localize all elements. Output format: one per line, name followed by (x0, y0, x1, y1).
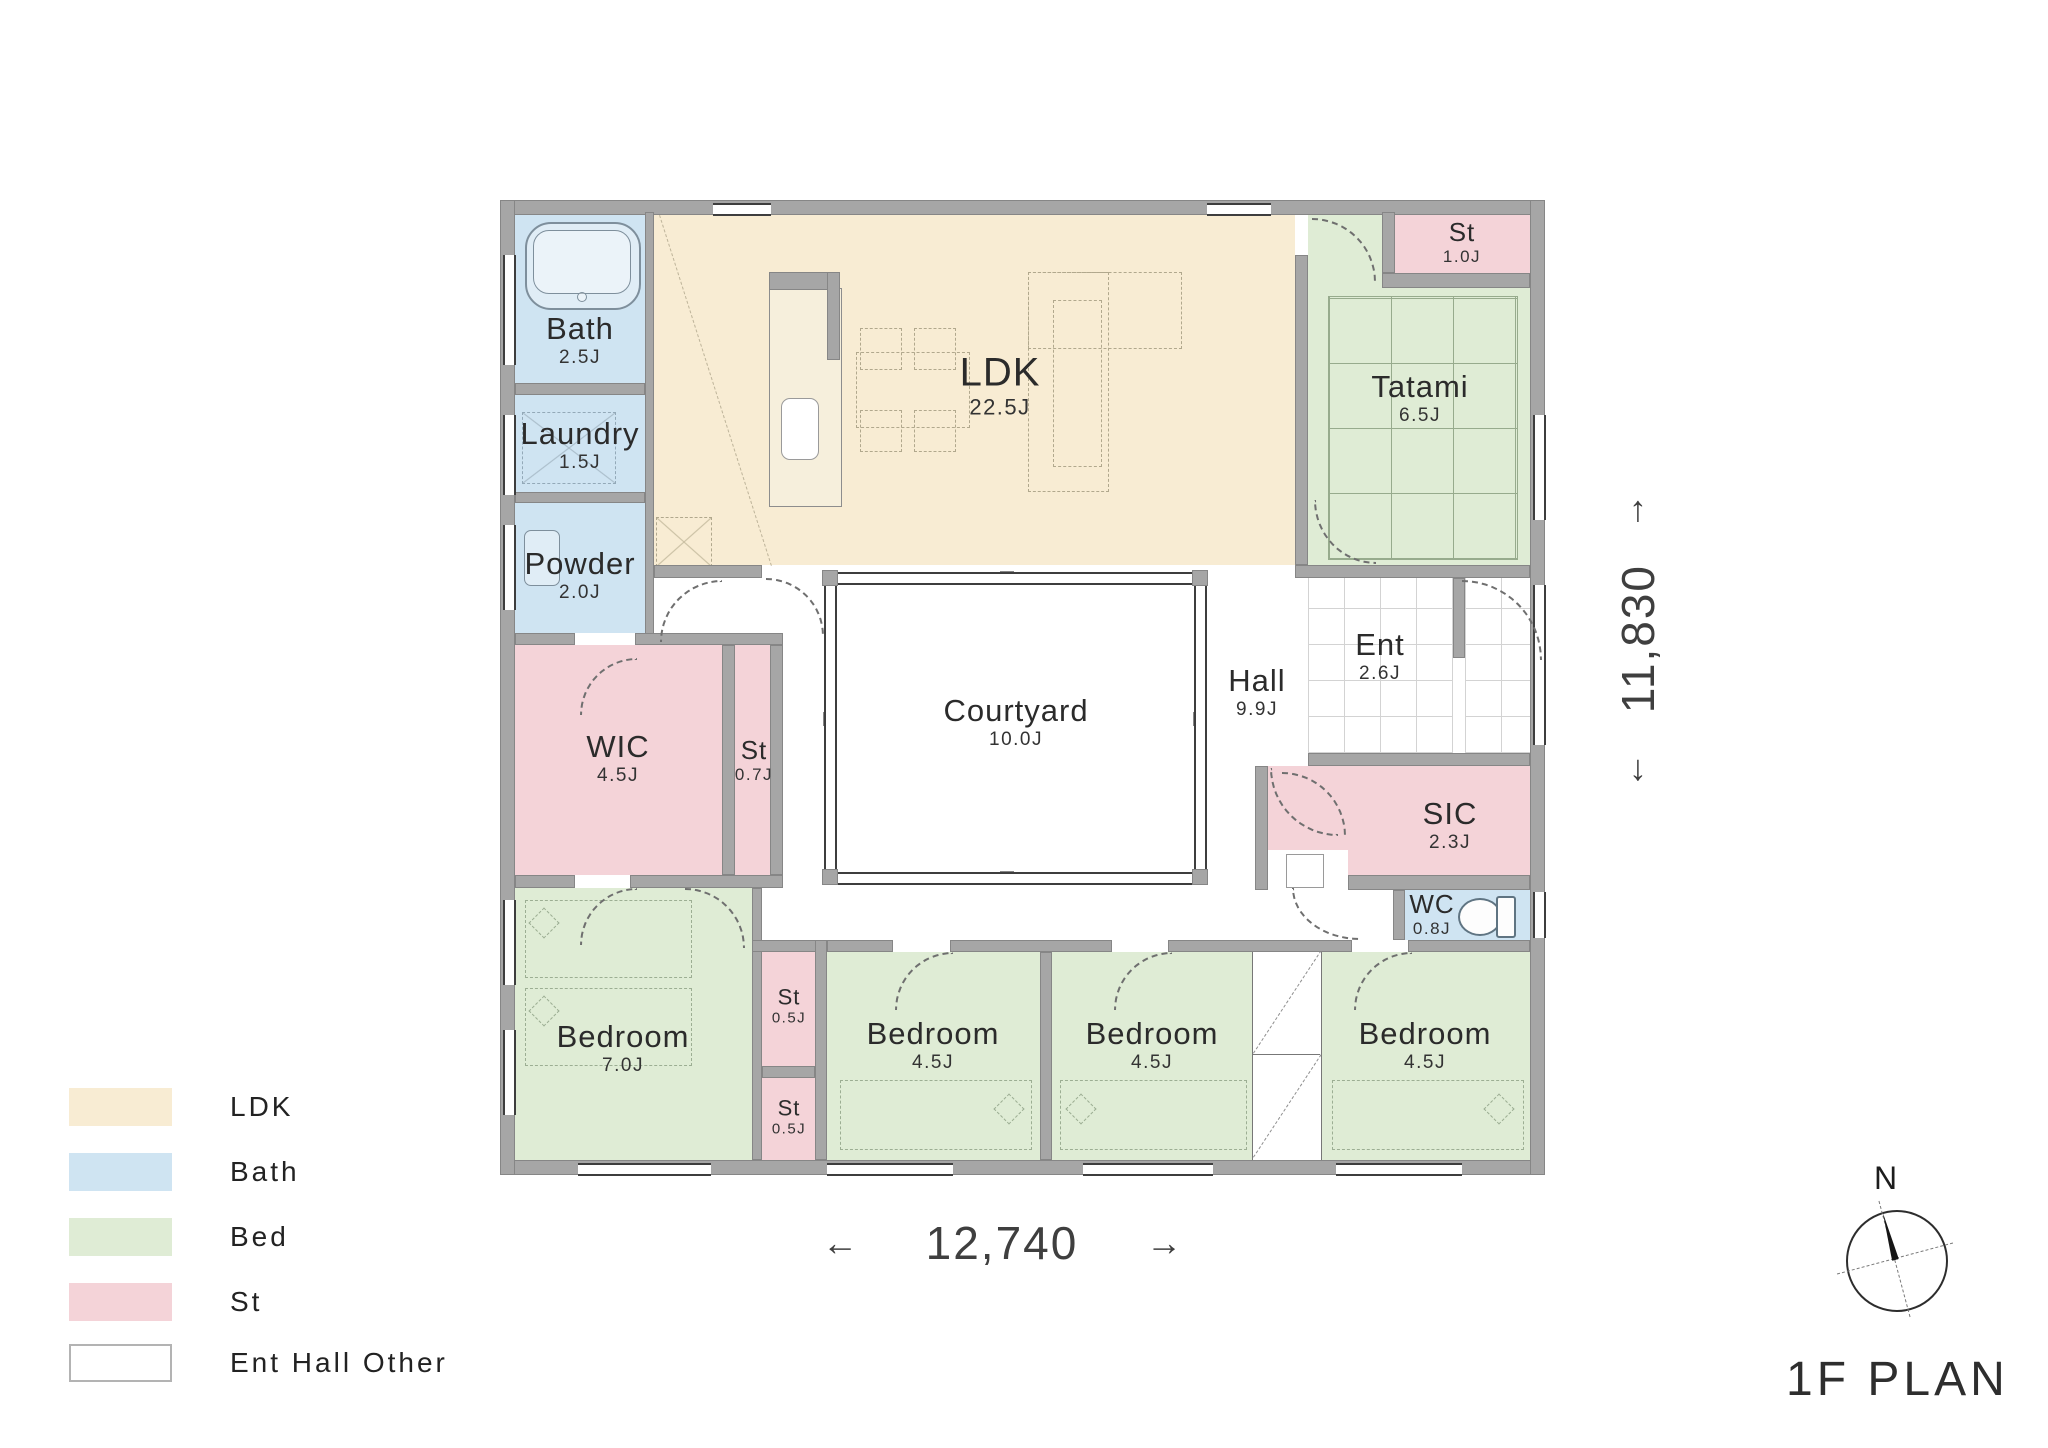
legend-swatch-ldk (69, 1088, 172, 1126)
label-bedroom-4: Bedroom4.5J (1359, 1017, 1492, 1073)
wall-sic-left (1255, 766, 1268, 890)
wall-bedrooms-top-b (950, 940, 1112, 952)
wall-st-top-left (1382, 212, 1395, 273)
label-st-small-upper: St0.5J (772, 985, 806, 1026)
window-left-2 (503, 415, 516, 495)
label-st-top: St1.0J (1443, 218, 1481, 266)
dimension-width: ← 12,740 → (822, 1216, 1182, 1270)
wall-st-column-mid (762, 1066, 815, 1078)
label-st-small-lower: St0.5J (772, 1096, 806, 1137)
window-bottom-4 (1336, 1163, 1462, 1176)
floor-plan: Bath2.5J Laundry1.5J Powder2.0J LDK22.5J… (500, 200, 1545, 1175)
wall-bath-laundry (515, 383, 645, 395)
door-arc-wc (1292, 888, 1360, 940)
label-bedroom-main: Bedroom7.0J (557, 1020, 690, 1076)
label-ent: Ent2.6J (1355, 628, 1405, 684)
wall-bedroom1-right (752, 888, 762, 1160)
label-st-mid: St0.7J (735, 736, 773, 784)
dimension-height: ↑ 11,830 ↓ (1598, 488, 1678, 789)
arrow-down-icon: ↓ (1629, 747, 1647, 789)
bathtub-drain-icon (577, 292, 587, 302)
window-top-2 (1207, 203, 1271, 216)
courtyard-window-right (1194, 586, 1207, 869)
wall-bedrooms-top-a (827, 940, 893, 952)
wall-wet-column-right (645, 212, 654, 645)
void-strip-divider (1252, 1054, 1320, 1055)
floor-plan-page: Bath2.5J Laundry1.5J Powder2.0J LDK22.5J… (0, 0, 2048, 1448)
legend-swatch-st (69, 1283, 172, 1321)
wall-ent-bottom (1308, 753, 1530, 766)
label-powder: Powder2.0J (524, 547, 635, 603)
legend-item-other: Ent Hall Other (69, 1344, 448, 1382)
window-bottom-3 (1083, 1163, 1213, 1176)
wall-st-top-bottom (1382, 273, 1530, 288)
label-tatami: Tatami6.5J (1371, 370, 1468, 426)
toilet-tank-icon (1496, 896, 1516, 938)
wall-wic-bottom-b (630, 875, 783, 888)
window-left-5 (503, 1030, 516, 1115)
label-bath: Bath2.5J (546, 312, 614, 368)
window-left-1 (503, 255, 516, 365)
void-strip (1252, 952, 1322, 1160)
wall-bedrooms-top-d (1408, 940, 1530, 952)
dining-chair-4 (914, 410, 956, 452)
compass-circle (1846, 1210, 1948, 1312)
bathtub-inner (533, 230, 631, 294)
sofa-seat (1053, 300, 1102, 467)
dining-chair-3 (860, 410, 902, 452)
label-ldk: LDK22.5J (960, 350, 1041, 419)
window-left-4 (503, 900, 516, 985)
courtyard-window-left (824, 586, 837, 869)
window-bottom-2 (827, 1163, 953, 1176)
legend-item-bath: Bath (69, 1153, 300, 1191)
window-right-3 (1533, 892, 1546, 938)
door-arc-ldk-hall (766, 578, 824, 636)
window-right-2 (1533, 585, 1546, 745)
window-left-3 (503, 525, 516, 610)
wall-ldk-bottom (654, 565, 762, 578)
arrow-up-icon: ↑ (1629, 488, 1647, 530)
label-hall: Hall9.9J (1228, 664, 1285, 720)
wall-wic-st (722, 645, 735, 875)
wall-st-column-right (815, 940, 827, 1160)
legend-swatch-bed (69, 1218, 172, 1256)
arrow-right-icon: → (1146, 1222, 1182, 1264)
window-bottom-1 (578, 1163, 711, 1176)
kitchen-sink-icon (781, 398, 819, 460)
wall-bedroom2-3 (1040, 952, 1052, 1160)
wall-wc-left (1393, 890, 1405, 940)
arrow-left-icon: ← (822, 1222, 858, 1264)
compass: N (1832, 1158, 1982, 1328)
label-sic: SIC2.3J (1423, 797, 1478, 853)
dimension-width-value: 12,740 (926, 1216, 1079, 1270)
wall-wic-bottom-a (515, 875, 575, 888)
legend-swatch-bath (69, 1153, 172, 1191)
legend-item-st: St (69, 1283, 262, 1321)
page-title: 1F PLAN (1786, 1352, 2009, 1407)
compass-north-label: N (1874, 1160, 1897, 1197)
courtyard-window-bottom (838, 872, 1192, 885)
legend-item-bed: Bed (69, 1218, 289, 1256)
label-laundry: Laundry1.5J (520, 417, 639, 473)
wall-sic-bottom (1348, 875, 1530, 890)
wall-wic-top-a (515, 633, 575, 645)
window-top-1 (713, 203, 771, 216)
legend-item-ldk: LDK (69, 1088, 293, 1126)
courtyard-window-top (838, 572, 1192, 585)
label-wc: WC0.8J (1409, 890, 1454, 938)
dining-chair-1 (860, 328, 902, 370)
window-right-1 (1533, 415, 1546, 520)
legend-swatch-other (69, 1344, 172, 1382)
dining-chair-2 (914, 328, 956, 370)
wall-laundry-powder (515, 492, 645, 503)
dimension-height-value: 11,830 (1611, 564, 1665, 713)
wall-tatami-bottom (1295, 565, 1530, 578)
kitchen-wall-stub (827, 272, 840, 360)
wall-bedrooms-top-c (1168, 940, 1352, 952)
shoe-box-icon (1286, 854, 1324, 888)
wall-ldk-tatami (1295, 255, 1308, 565)
label-bedroom-3: Bedroom4.5J (1086, 1017, 1219, 1073)
label-courtyard: Courtyard10.0J (943, 694, 1088, 750)
label-bedroom-2: Bedroom4.5J (867, 1017, 1000, 1073)
door-arc-powder (660, 580, 722, 642)
pantry-icon (656, 517, 712, 567)
label-wic: WIC4.5J (586, 730, 649, 786)
